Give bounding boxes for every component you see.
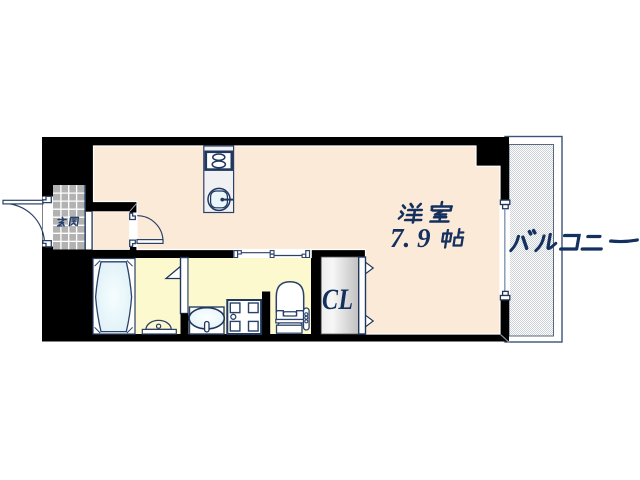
svg-text:7. 9: 7. 9 [390,223,431,253]
svg-text:CL: CL [322,282,353,315]
